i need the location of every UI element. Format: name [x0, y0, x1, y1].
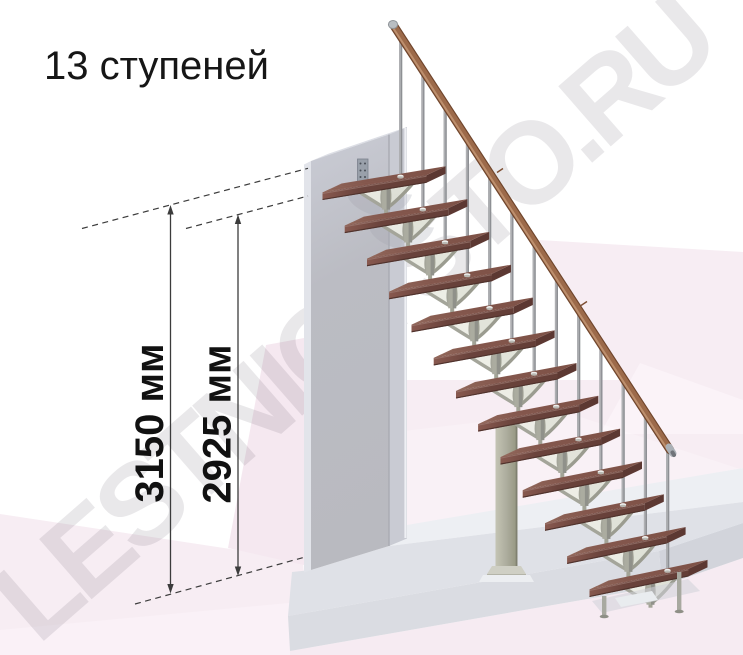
svg-text:3150 мм: 3150 мм	[128, 343, 172, 502]
svg-text:2925 мм: 2925 мм	[196, 344, 240, 503]
svg-text:13 ступеней: 13 ступеней	[44, 44, 269, 88]
